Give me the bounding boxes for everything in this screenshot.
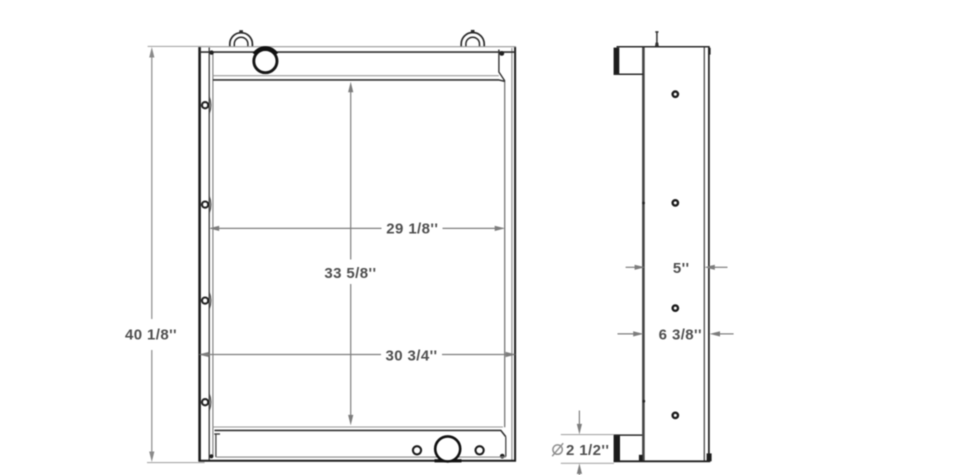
svg-text:6 3/8'': 6 3/8'': [659, 327, 702, 344]
svg-text:5'': 5'': [673, 260, 690, 277]
svg-text:2 1/2'': 2 1/2'': [566, 442, 609, 459]
svg-text:29 1/8'': 29 1/8'': [386, 221, 438, 238]
svg-text:30 3/4'': 30 3/4'': [385, 348, 437, 365]
svg-text:40 1/8'': 40 1/8'': [125, 327, 177, 344]
svg-text:33 5/8'': 33 5/8'': [324, 265, 376, 282]
